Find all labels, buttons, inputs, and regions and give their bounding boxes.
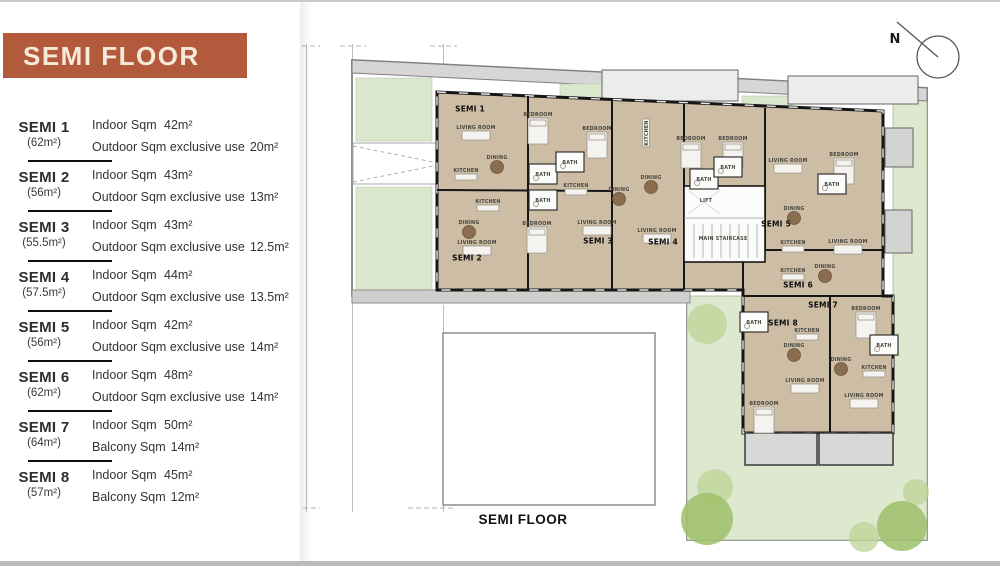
legend-row: SEMI 7 (64m²) Indoor Sqm 50m² Balcony Sq… — [0, 417, 300, 454]
room-label: DINING — [814, 264, 835, 270]
courtyard-terrace — [788, 76, 918, 104]
outdoor-value: 14m² — [250, 390, 278, 404]
unit-total-size: (57m²) — [0, 487, 88, 499]
room-label: BATH — [876, 343, 891, 349]
terrace-edge — [352, 290, 690, 303]
outdoor-label: Balcony Sqm — [92, 490, 166, 504]
unit-name: SEMI 6 — [0, 369, 88, 386]
legend-panel: SEMI FLOOR SEMI 1 (62m²) Indoor Sqm 42m²… — [0, 0, 300, 566]
room-label: LIFT — [700, 198, 713, 204]
room-label: KITCHEN — [475, 199, 500, 205]
unit-name: SEMI 2 — [0, 169, 88, 186]
room-label: BEDROOM — [676, 136, 705, 142]
room-label: LIVING ROOM — [577, 220, 616, 226]
room-label: LIVING ROOM — [637, 228, 676, 234]
outdoor-label: Outdoor Sqm exclusive use — [92, 140, 245, 154]
unit-total-size: (55.5m²) — [0, 237, 88, 249]
room-label: BEDROOM — [829, 152, 858, 158]
room-label: KITCHEN — [780, 240, 805, 246]
indoor-value: 48m² — [164, 368, 192, 382]
room-label: KITCHEN — [861, 365, 886, 371]
legend: SEMI 1 (62m²) Indoor Sqm 42m² Outdoor Sq… — [0, 117, 300, 517]
indoor-label: Indoor Sqm — [92, 468, 164, 482]
room-label: LIVING ROOM — [456, 125, 495, 131]
room-label: BEDROOM — [851, 306, 880, 312]
lower-footprint — [443, 333, 655, 505]
room-label: KITCHEN — [644, 120, 650, 145]
unit-name: SEMI 8 — [0, 469, 88, 486]
room-label: KITCHEN — [780, 268, 805, 274]
unit-label: SEMI 8 — [768, 319, 798, 328]
indoor-label: Indoor Sqm — [92, 318, 164, 332]
outdoor-value: 14m² — [171, 440, 199, 454]
unit-total-size: (62m²) — [0, 387, 88, 399]
outdoor-label: Outdoor Sqm exclusive use — [92, 190, 245, 204]
side-terrace — [885, 210, 912, 253]
legend-row: SEMI 5 (56m²) Indoor Sqm 42m² Outdoor Sq… — [0, 317, 300, 354]
unit-label: SEMI 6 — [783, 281, 813, 290]
compass: N — [890, 22, 959, 78]
courtyard-terrace — [602, 70, 738, 101]
outdoor-value: 14m² — [250, 340, 278, 354]
slide-top-border — [0, 0, 1000, 2]
room-label: LIVING ROOM — [768, 158, 807, 164]
outdoor-value: 20m² — [250, 140, 278, 154]
outdoor-value: 12m² — [171, 490, 199, 504]
unit-label: SEMI 2 — [452, 254, 482, 263]
outdoor-label: Balcony Sqm — [92, 440, 166, 454]
driveway-ramp — [353, 143, 444, 184]
outdoor-label: Outdoor Sqm exclusive use — [92, 390, 245, 404]
legend-row: SEMI 3 (55.5m²) Indoor Sqm 43m² Outdoor … — [0, 217, 300, 254]
indoor-value: 43m² — [164, 218, 192, 232]
indoor-value: 45m² — [164, 468, 192, 482]
outdoor-label: Outdoor Sqm exclusive use — [92, 290, 245, 304]
legend-row: SEMI 1 (62m²) Indoor Sqm 42m² Outdoor Sq… — [0, 117, 300, 154]
indoor-value: 42m² — [164, 118, 192, 132]
room-label: KITCHEN — [453, 168, 478, 174]
outdoor-label: Outdoor Sqm exclusive use — [92, 340, 245, 354]
unit-label: SEMI 5 — [761, 220, 791, 229]
indoor-label: Indoor Sqm — [92, 418, 164, 432]
room-label: BATH — [824, 182, 839, 188]
lift-core — [684, 186, 765, 262]
unit-label: SEMI 3 — [583, 237, 613, 246]
room-label: DINING — [486, 155, 507, 161]
unit-total-size: (62m²) — [0, 137, 88, 149]
unit-total-size: (56m²) — [0, 187, 88, 199]
balcony — [745, 433, 817, 465]
legend-row: SEMI 4 (57.5m²) Indoor Sqm 44m² Outdoor … — [0, 267, 300, 304]
room-label: DINING — [608, 187, 629, 193]
room-label: BATH — [696, 177, 711, 183]
indoor-label: Indoor Sqm — [92, 118, 164, 132]
compass-n-label: N — [890, 32, 901, 47]
room-label: KITCHEN — [794, 328, 819, 334]
room-label: BATH — [535, 172, 550, 178]
side-terrace — [885, 128, 913, 167]
unit-label: SEMI 1 — [455, 105, 485, 114]
balcony — [819, 433, 893, 465]
room-label: DINING — [783, 343, 804, 349]
room-label: LIVING ROOM — [457, 240, 496, 246]
room-label: LIVING ROOM — [785, 378, 824, 384]
legend-row: SEMI 2 (56m²) Indoor Sqm 43m² Outdoor Sq… — [0, 167, 300, 204]
indoor-value: 44m² — [164, 268, 192, 282]
room-label: BATH — [746, 320, 761, 326]
indoor-label: Indoor Sqm — [92, 218, 164, 232]
indoor-value: 50m² — [164, 418, 192, 432]
unit-label: SEMI 4 — [648, 238, 678, 247]
indoor-label: Indoor Sqm — [92, 268, 164, 282]
indoor-value: 43m² — [164, 168, 192, 182]
room-label: BEDROOM — [749, 401, 778, 407]
slide: N LIVING ROOMDININGKITCHENBEDROOMBATHKIT… — [0, 0, 1000, 566]
slide-bottom-border — [0, 561, 1000, 566]
outdoor-label: Outdoor Sqm exclusive use — [92, 240, 245, 254]
room-label: BATH — [562, 160, 577, 166]
room-label: MAIN STAIRCASE — [699, 236, 748, 242]
legend-row: SEMI 8 (57m²) Indoor Sqm 45m² Balcony Sq… — [0, 467, 300, 504]
room-label: BEDROOM — [522, 221, 551, 227]
room-label: BATH — [535, 198, 550, 204]
room-label: BEDROOM — [718, 136, 747, 142]
outdoor-value: 12.5m² — [250, 240, 289, 254]
unit-name: SEMI 1 — [0, 119, 88, 136]
room-label: DINING — [458, 220, 479, 226]
room-label: DINING — [830, 357, 851, 363]
room-label: BEDROOM — [523, 112, 552, 118]
unit-total-size: (64m²) — [0, 437, 88, 449]
plan-caption: SEMI FLOOR — [443, 512, 603, 527]
legend-row: SEMI 6 (62m²) Indoor Sqm 48m² Outdoor Sq… — [0, 367, 300, 404]
room-label: BEDROOM — [582, 126, 611, 132]
unit-name: SEMI 5 — [0, 319, 88, 336]
outdoor-value: 13.5m² — [250, 290, 289, 304]
room-label: KITCHEN — [563, 183, 588, 189]
room-label: BATH — [720, 165, 735, 171]
indoor-label: Indoor Sqm — [92, 368, 164, 382]
room-label: DINING — [640, 175, 661, 181]
indoor-value: 42m² — [164, 318, 192, 332]
room-label: LIVING ROOM — [844, 393, 883, 399]
outdoor-value: 13m² — [250, 190, 278, 204]
unit-total-size: (56m²) — [0, 337, 88, 349]
unit-name: SEMI 3 — [0, 219, 88, 236]
room-label: DINING — [783, 206, 804, 212]
page-title: SEMI FLOOR — [23, 41, 200, 71]
title-banner: SEMI FLOOR — [3, 33, 247, 78]
unit-name: SEMI 7 — [0, 419, 88, 436]
unit-name: SEMI 4 — [0, 269, 88, 286]
room-label: LIVING ROOM — [828, 239, 867, 245]
unit-total-size: (57.5m²) — [0, 287, 88, 299]
unit-label: SEMI 7 — [808, 301, 838, 310]
indoor-label: Indoor Sqm — [92, 168, 164, 182]
